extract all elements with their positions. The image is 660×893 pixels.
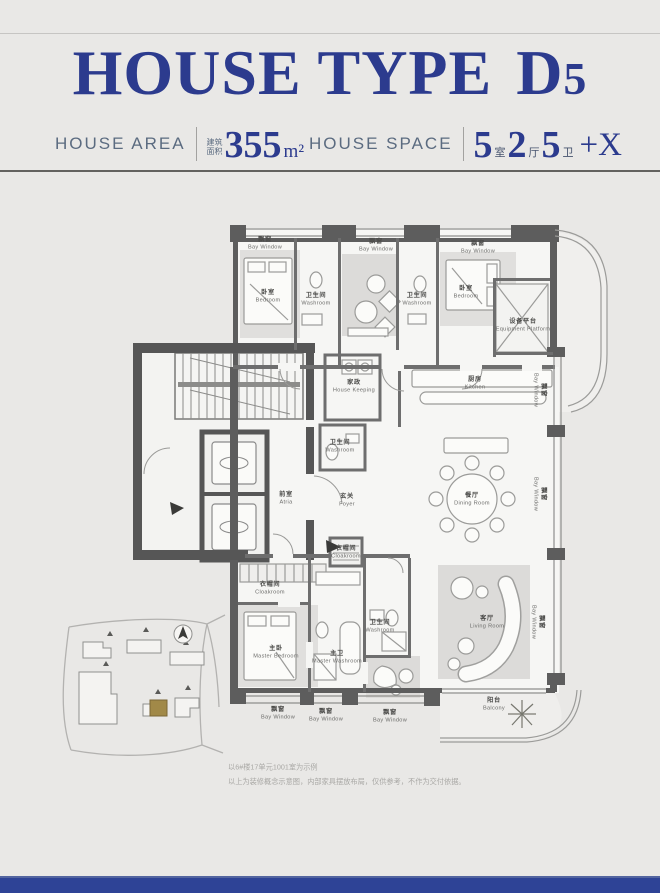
site-plan-map: [55, 612, 230, 757]
bed-1: [244, 258, 292, 324]
north-arrow-icon: [174, 625, 192, 643]
space-num-baths: 5: [542, 129, 561, 161]
space-unit-baths: 卫: [563, 148, 574, 159]
space-unit-halls: 厅: [529, 148, 540, 159]
space-suffix: +X: [580, 131, 622, 161]
house-space-label: HOUSE SPACE: [309, 134, 453, 154]
area-cn-1: 建筑: [207, 138, 223, 147]
equipment-platform-shape: [496, 284, 548, 352]
site-plan-svg: [55, 612, 230, 757]
title-letter: D: [516, 37, 563, 108]
disclaimer-line-2: 以上为装修概念示意图，内部家具摆放布局，仅供参考，不作为交付依据。: [228, 775, 631, 789]
disclaimer: 以6#楼17单元1001室为示例 以上为装修概念示意图，内部家具摆放布局，仅供参…: [228, 761, 631, 790]
highlighted-building: [150, 700, 167, 716]
title-number: 5: [563, 53, 587, 104]
space-num-rooms: 5: [474, 129, 493, 161]
space-unit-rooms: 室: [495, 148, 506, 159]
stairs: [175, 353, 303, 419]
divider-line: [463, 127, 464, 161]
divider-line: [196, 127, 197, 161]
header-subrow: HOUSE AREA 建筑 面积 355 m² HOUSE SPACE 5 室 …: [55, 120, 622, 168]
disclaimer-line-1: 以6#楼17单元1001室为示例: [228, 761, 631, 775]
area-value: 355: [225, 129, 282, 161]
title-main: HOUSE TYPE: [73, 37, 493, 108]
house-space-block: HOUSE SPACE 5 室 2 厅 5 卫 +X: [309, 127, 622, 161]
site-buildings: [79, 640, 204, 724]
dining-table: [429, 456, 515, 542]
area-unit: m²: [284, 142, 304, 161]
header-divider: [0, 170, 660, 172]
area-cn-caption: 建筑 面积: [207, 138, 223, 156]
house-area-label: HOUSE AREA: [55, 134, 186, 154]
area-cn-2: 面积: [207, 147, 223, 156]
page-title: HOUSE TYPED5: [0, 38, 660, 107]
bed-2: [446, 260, 500, 310]
cloakroom-wardrobe: [240, 564, 326, 582]
master-bed: [244, 612, 296, 680]
house-area-block: HOUSE AREA 建筑 面积 355 m²: [55, 127, 304, 161]
space-num-halls: 2: [508, 129, 527, 161]
house-type-poster: HOUSE TYPED5 HOUSE AREA 建筑 面积 355 m² HOU…: [0, 0, 660, 893]
top-divider: [0, 33, 660, 34]
footer-bar: [0, 876, 660, 893]
